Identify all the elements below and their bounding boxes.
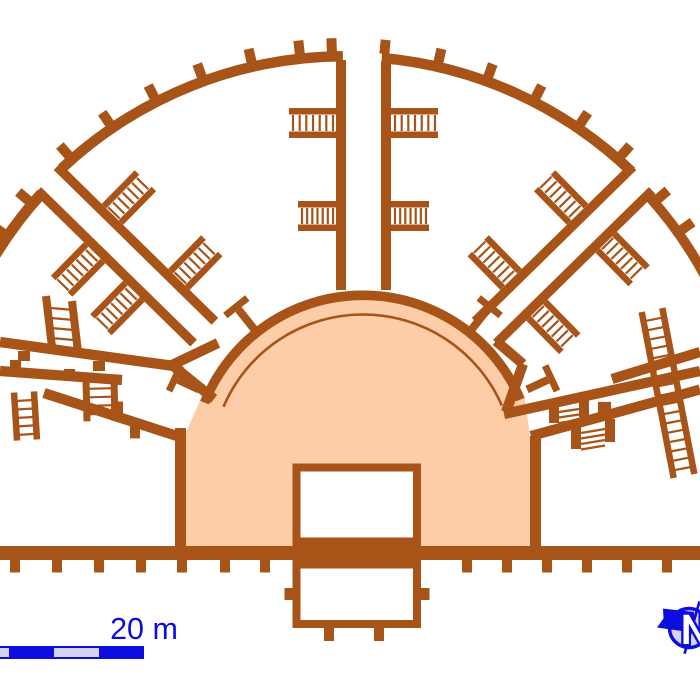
svg-text:20 m: 20 m (110, 612, 178, 646)
